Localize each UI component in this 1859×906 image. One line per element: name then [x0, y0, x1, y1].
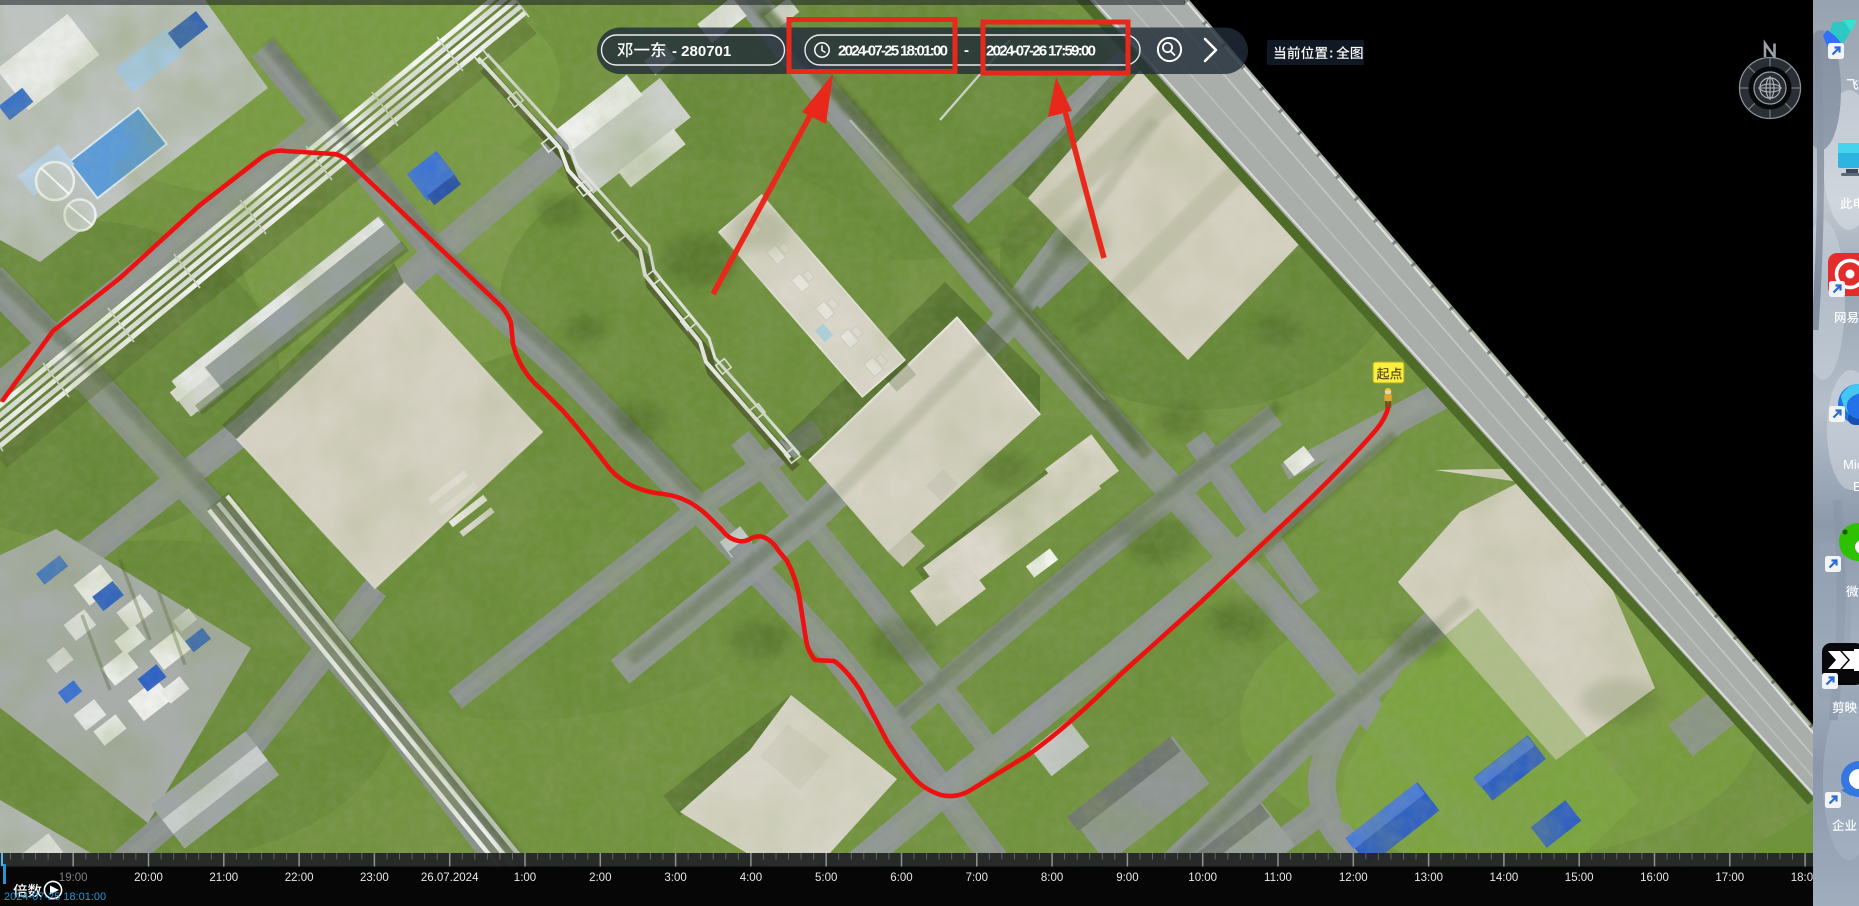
- svg-text:3:00: 3:00: [664, 872, 686, 884]
- svg-text:12:00: 12:00: [1339, 872, 1368, 884]
- svg-text:2:00: 2:00: [589, 872, 611, 884]
- svg-text:8:00: 8:00: [1041, 872, 1063, 884]
- svg-text:16:00: 16:00: [1640, 872, 1669, 884]
- svg-text:7:00: 7:00: [966, 872, 988, 884]
- svg-text:5:00: 5:00: [815, 872, 837, 884]
- svg-text:26.07.2024: 26.07.2024: [421, 872, 479, 884]
- svg-text:10:00: 10:00: [1188, 872, 1217, 884]
- svg-text:2024-07-25 18:01:00: 2024-07-25 18:01:00: [4, 891, 106, 903]
- svg-text:6:00: 6:00: [890, 872, 912, 884]
- svg-text:20:00: 20:00: [134, 872, 163, 884]
- svg-text:15:00: 15:00: [1565, 872, 1594, 884]
- svg-text:13:00: 13:00: [1414, 872, 1443, 884]
- svg-text:2024-07-25 18:01:00: 2024-07-25 18:01:00: [838, 43, 948, 60]
- svg-text:4:00: 4:00: [740, 872, 762, 884]
- svg-text:Ed: Ed: [1853, 479, 1859, 494]
- svg-text:17:00: 17:00: [1715, 872, 1744, 884]
- svg-text:22:00: 22:00: [285, 872, 314, 884]
- svg-text:23:00: 23:00: [360, 872, 389, 884]
- svg-text:- 280701: - 280701: [672, 43, 731, 60]
- svg-text:9:00: 9:00: [1116, 872, 1138, 884]
- svg-text:14:00: 14:00: [1490, 872, 1519, 884]
- svg-text:2024-07-26 17:59:00: 2024-07-26 17:59:00: [986, 43, 1096, 60]
- svg-text:1:00: 1:00: [514, 872, 536, 884]
- svg-text:Micr: Micr: [1843, 457, 1859, 472]
- svg-text:19:00: 19:00: [59, 872, 88, 884]
- svg-text:21:00: 21:00: [209, 872, 238, 884]
- svg-text:-: -: [964, 42, 969, 59]
- svg-text:11:00: 11:00: [1264, 872, 1292, 884]
- svg-text::: :: [1329, 46, 1334, 61]
